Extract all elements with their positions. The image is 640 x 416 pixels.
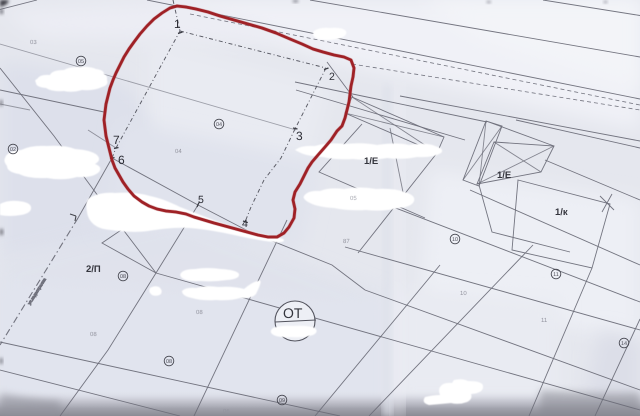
svg-text:11: 11	[541, 317, 548, 324]
svg-text:08: 08	[166, 359, 172, 365]
svg-text:1/Е: 1/Е	[364, 156, 378, 167]
svg-text:87: 87	[343, 238, 350, 245]
svg-text:2: 2	[329, 71, 335, 83]
svg-text:1: 1	[174, 17, 181, 31]
svg-text:10: 10	[452, 237, 458, 243]
svg-text:11: 11	[553, 272, 559, 278]
svg-text:ОТ: ОТ	[283, 305, 303, 321]
svg-text:09: 09	[279, 398, 285, 404]
svg-text:1/Е: 1/Е	[497, 170, 511, 181]
svg-text:08: 08	[120, 274, 126, 280]
svg-text:6: 6	[118, 153, 125, 167]
svg-text:2/П: 2/П	[86, 264, 101, 275]
svg-text:1/к: 1/к	[555, 207, 568, 218]
svg-text:08: 08	[90, 331, 97, 338]
svg-text:08: 08	[196, 309, 203, 316]
svg-text:05: 05	[78, 59, 84, 65]
svg-text:14: 14	[621, 341, 627, 347]
svg-text:04: 04	[175, 148, 182, 155]
svg-text:10: 10	[460, 290, 467, 297]
svg-text:02: 02	[10, 147, 16, 153]
svg-text:03: 03	[30, 39, 37, 46]
svg-text:5: 5	[198, 194, 204, 206]
svg-text:05: 05	[350, 195, 357, 202]
svg-text:06: 06	[223, 408, 230, 415]
svg-text:4: 4	[242, 218, 248, 230]
svg-text:3: 3	[296, 129, 303, 143]
svg-text:7: 7	[113, 133, 120, 147]
svg-text:04: 04	[216, 122, 222, 128]
